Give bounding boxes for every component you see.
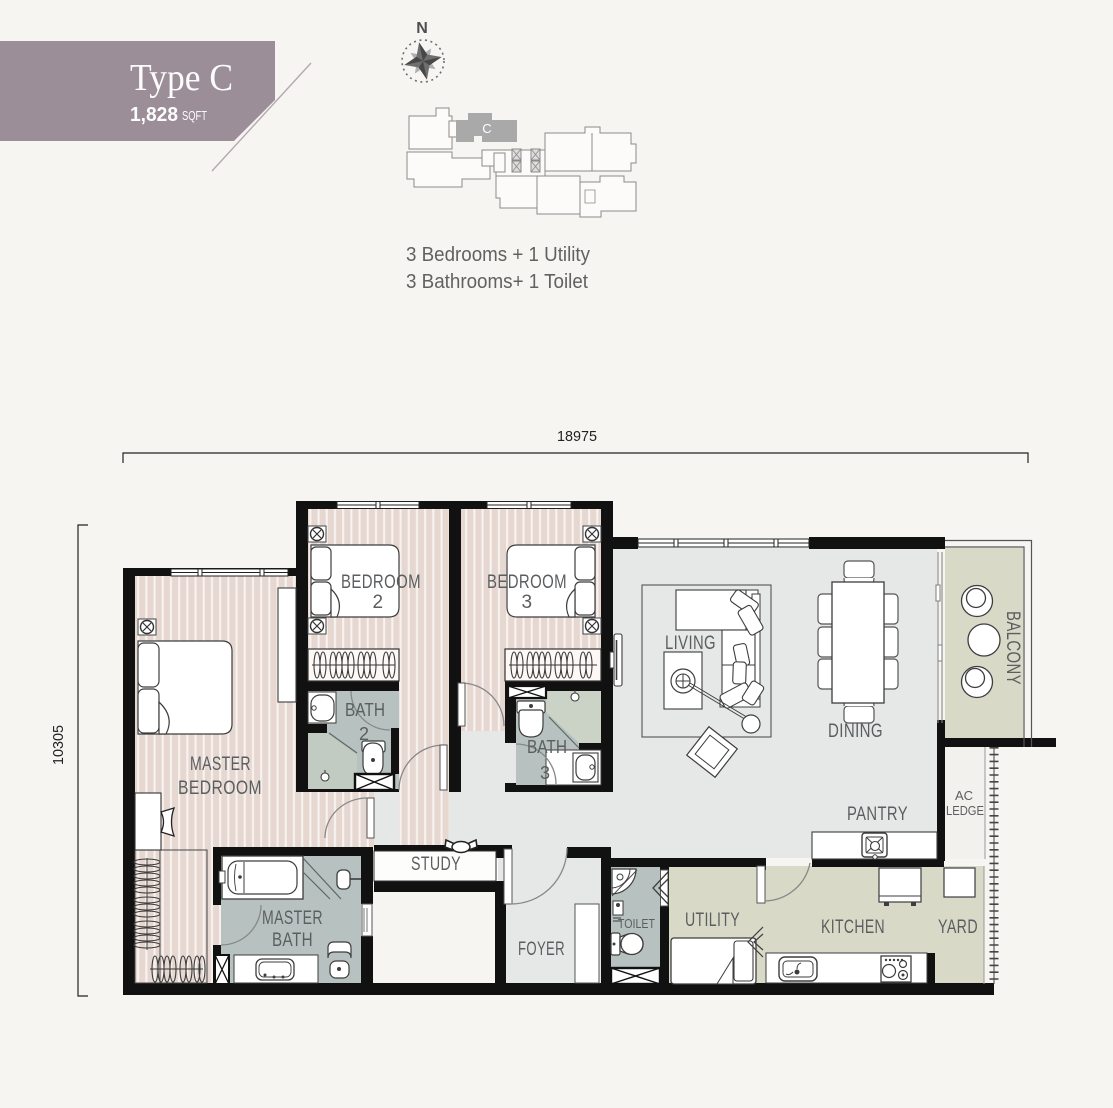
svg-text:BATH: BATH [527,737,567,757]
svg-text:N: N [416,20,428,37]
svg-text:YARD: YARD [938,917,978,938]
svg-text:MASTER: MASTER [190,754,251,775]
svg-text:18975: 18975 [557,428,597,445]
svg-text:BEDROOM: BEDROOM [487,572,567,593]
svg-text:3 Bathrooms+ 1 Toilet: 3 Bathrooms+ 1 Toilet [406,271,588,293]
svg-text:BATH: BATH [272,930,313,951]
svg-text:3: 3 [540,763,550,783]
svg-text:TOILET: TOILET [618,916,655,931]
svg-text:3: 3 [521,592,532,613]
svg-text:AC: AC [955,788,973,803]
svg-text:3 Bedrooms + 1 Utility: 3 Bedrooms + 1 Utility [406,244,590,266]
svg-text:SQFT: SQFT [182,108,207,123]
svg-text:DINING: DINING [828,721,883,742]
svg-text:BEDROOM: BEDROOM [178,778,262,799]
svg-text:MASTER: MASTER [262,908,323,929]
svg-text:PANTRY: PANTRY [847,804,908,825]
svg-text:FOYER: FOYER [518,939,565,960]
svg-text:STUDY: STUDY [411,854,461,875]
svg-text:BALCONY: BALCONY [1002,611,1023,685]
svg-text:BEDROOM: BEDROOM [341,572,421,593]
svg-text:UTILITY: UTILITY [685,910,740,931]
svg-text:C: C [482,121,491,136]
svg-text:2: 2 [372,592,383,613]
svg-text:Type C: Type C [130,57,233,99]
svg-text:BATH: BATH [345,700,385,720]
svg-text:KITCHEN: KITCHEN [821,917,885,938]
svg-text:LEDGE: LEDGE [946,803,984,818]
svg-text:LIVING: LIVING [665,633,716,654]
svg-text:1,828: 1,828 [130,104,178,126]
svg-text:10305: 10305 [50,725,67,765]
svg-text:2: 2 [359,724,369,744]
